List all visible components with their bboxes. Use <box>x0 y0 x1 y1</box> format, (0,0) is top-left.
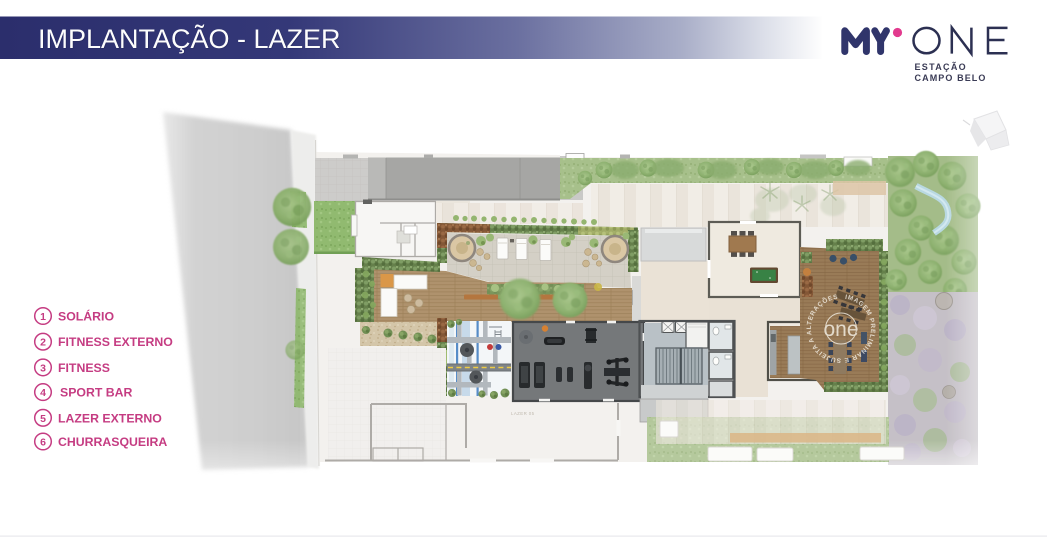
svg-text:SOLÁRIO: SOLÁRIO <box>58 309 114 324</box>
svg-text:1: 1 <box>40 311 46 323</box>
svg-text:CHURRASQUEIRA: CHURRASQUEIRA <box>58 435 167 449</box>
svg-text:CAMPO BELO: CAMPO BELO <box>915 73 987 83</box>
svg-text:5: 5 <box>40 413 46 425</box>
svg-text:FITNESS: FITNESS <box>58 361 110 375</box>
svg-text:IMPLANTAÇÃO - LAZER: IMPLANTAÇÃO - LAZER <box>38 23 341 54</box>
svg-text:ESTAÇÃO: ESTAÇÃO <box>915 62 967 72</box>
svg-text:4: 4 <box>40 387 46 399</box>
svg-text:6: 6 <box>40 437 46 449</box>
svg-text:FITNESS EXTERNO: FITNESS EXTERNO <box>58 335 173 349</box>
svg-text:3: 3 <box>40 362 46 374</box>
svg-text:LAZER EXTERNO: LAZER EXTERNO <box>58 411 162 425</box>
svg-text:2: 2 <box>40 337 46 349</box>
svg-text:SPORT BAR: SPORT BAR <box>60 386 133 400</box>
